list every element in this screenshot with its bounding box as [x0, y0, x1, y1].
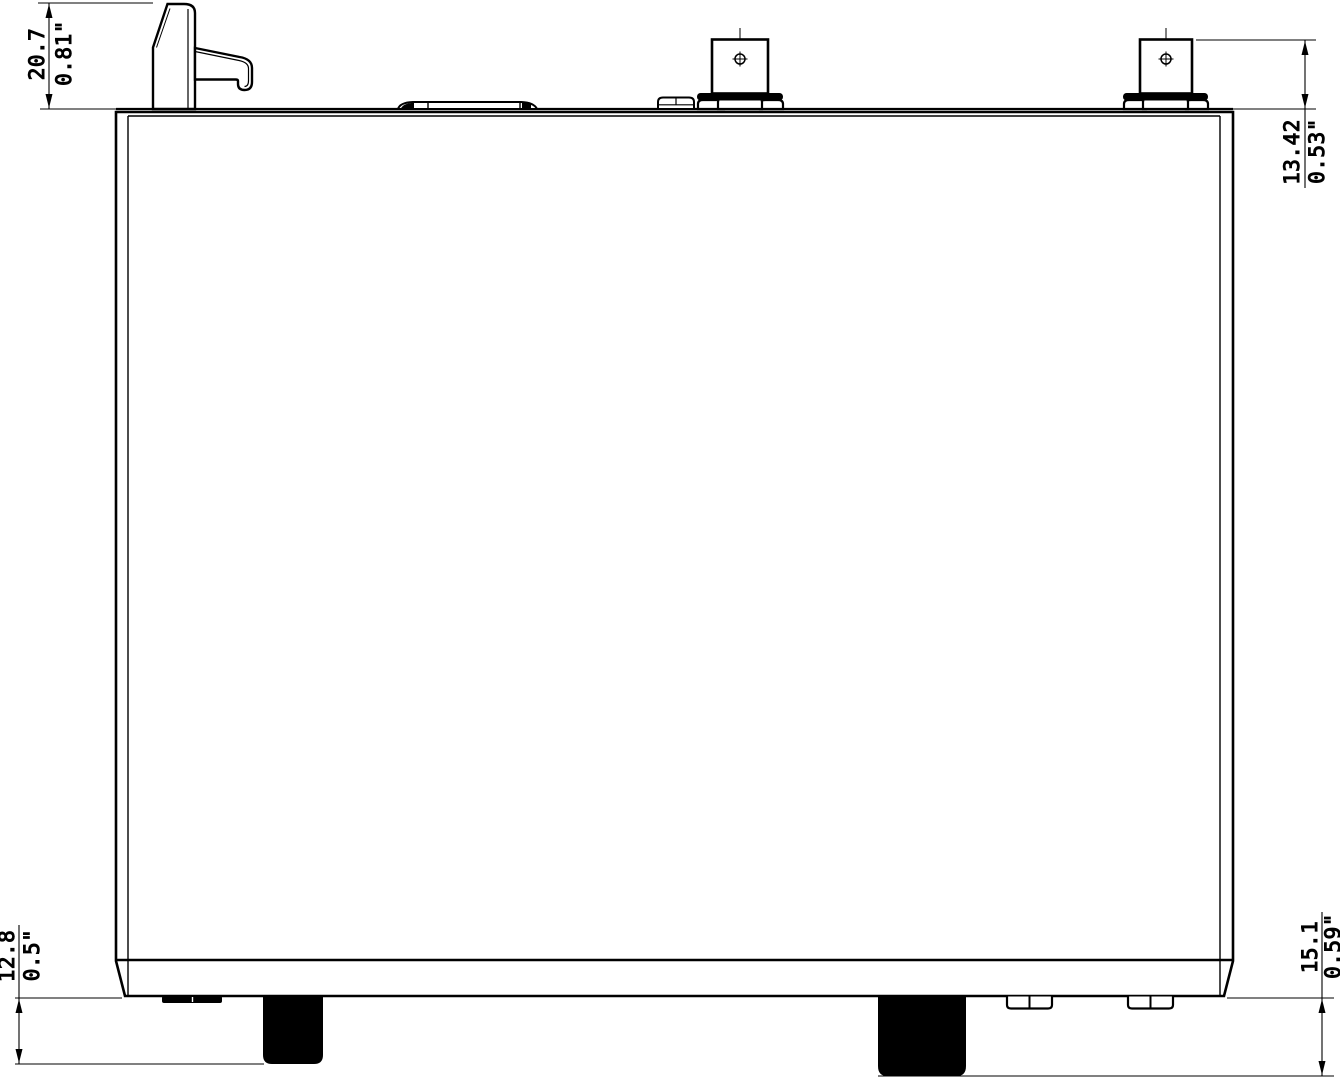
- flat-strip-right-cap: [522, 103, 531, 109]
- dim-rear-foot-arrow-down: [1319, 1061, 1326, 1075]
- rubber-foot-front: [263, 997, 323, 1064]
- feet: [263, 997, 966, 1076]
- dimension-latch-height: 20.7 0.81": [25, 3, 153, 109]
- bnc-right-nut-facet-right: [1186, 100, 1208, 109]
- dim-front-foot-arrow-up: [16, 999, 23, 1013]
- dim-front-foot-height-mm: 12.8: [0, 930, 19, 983]
- dim-latch-arrow-down: [46, 94, 53, 108]
- dim-antenna-arrow-down: [1302, 94, 1309, 108]
- top-flat-strip: [398, 102, 537, 109]
- dim-rear-foot-height-in: 0.59": [1321, 913, 1340, 979]
- dim-front-foot-arrow-down: [16, 1049, 23, 1063]
- dim-antenna-height-in: 0.53": [1305, 118, 1329, 184]
- bnc-connector-middle: [697, 28, 783, 109]
- top-latch: [153, 4, 252, 109]
- rubber-foot-rear: [878, 997, 966, 1076]
- bnc-connector-right: [1123, 28, 1208, 109]
- chassis: [40, 109, 1316, 996]
- dim-rear-foot-arrow-up: [1319, 999, 1326, 1013]
- dim-latch-height-in: 0.81": [52, 20, 76, 86]
- dim-latch-arrow-up: [46, 4, 53, 18]
- latch-hook-arm: [195, 48, 252, 90]
- chassis-outline: [116, 112, 1233, 996]
- dim-front-foot-height-in: 0.5": [20, 929, 44, 982]
- latch-body: [153, 4, 195, 109]
- technical-drawing: 20.7 0.81" 13.42 0.53" 12.8 0.5" 15.1 0.…: [0, 0, 1340, 1080]
- dim-rear-foot-height-mm: 15.1: [1298, 921, 1322, 974]
- flat-strip-outline: [398, 102, 537, 109]
- dim-antenna-height-mm: 13.42: [1280, 119, 1304, 185]
- dim-latch-height-mm: 20.7: [25, 28, 49, 81]
- dim-antenna-arrow-up: [1302, 41, 1309, 55]
- top-small-button: [658, 98, 694, 110]
- bnc-middle-nut-facet-right: [760, 100, 783, 109]
